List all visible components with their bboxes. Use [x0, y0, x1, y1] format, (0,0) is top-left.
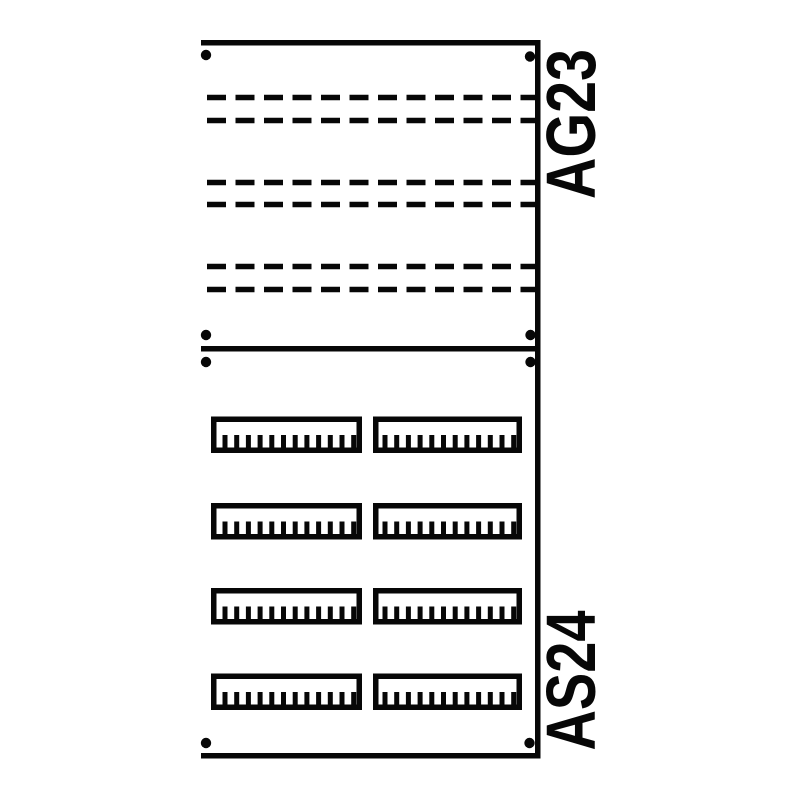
svg-text:AG23: AG23	[532, 49, 611, 199]
svg-text:AS24: AS24	[533, 610, 610, 750]
